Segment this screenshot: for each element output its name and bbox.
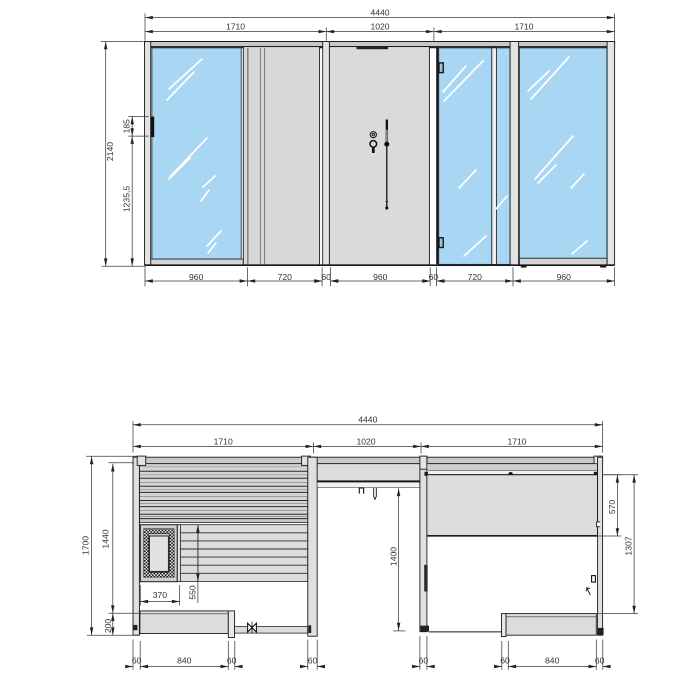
svg-text:1710: 1710 (214, 436, 233, 446)
svg-text:570: 570 (607, 500, 617, 515)
svg-text:1440: 1440 (101, 529, 111, 548)
svg-text:4440: 4440 (358, 415, 377, 425)
svg-text:2140: 2140 (105, 142, 115, 161)
svg-text:840: 840 (545, 656, 560, 666)
svg-text:60: 60 (429, 272, 439, 282)
svg-text:60: 60 (227, 656, 237, 666)
svg-text:550: 550 (188, 585, 198, 600)
svg-text:60: 60 (308, 656, 318, 666)
svg-text:960: 960 (557, 272, 572, 282)
svg-text:60: 60 (419, 656, 429, 666)
svg-text:185: 185 (122, 119, 132, 134)
svg-text:4440: 4440 (370, 8, 389, 18)
svg-text:1020: 1020 (370, 22, 389, 32)
svg-text:1710: 1710 (226, 22, 245, 32)
svg-text:1700: 1700 (81, 536, 91, 555)
svg-text:200: 200 (103, 619, 113, 634)
svg-text:960: 960 (373, 272, 388, 282)
svg-text:60: 60 (595, 656, 605, 666)
svg-text:1400: 1400 (388, 547, 398, 566)
svg-text:370: 370 (153, 590, 168, 600)
svg-text:60: 60 (500, 656, 510, 666)
svg-text:1020: 1020 (356, 436, 375, 446)
svg-text:960: 960 (189, 272, 204, 282)
svg-text:60: 60 (321, 272, 331, 282)
svg-text:1710: 1710 (514, 22, 533, 32)
svg-text:720: 720 (278, 272, 293, 282)
svg-text:1710: 1710 (507, 436, 526, 446)
svg-text:1307: 1307 (623, 536, 633, 555)
svg-text:720: 720 (468, 272, 483, 282)
svg-text:840: 840 (177, 656, 192, 666)
svg-text:60: 60 (132, 656, 142, 666)
svg-text:1235,5: 1235,5 (122, 186, 132, 213)
